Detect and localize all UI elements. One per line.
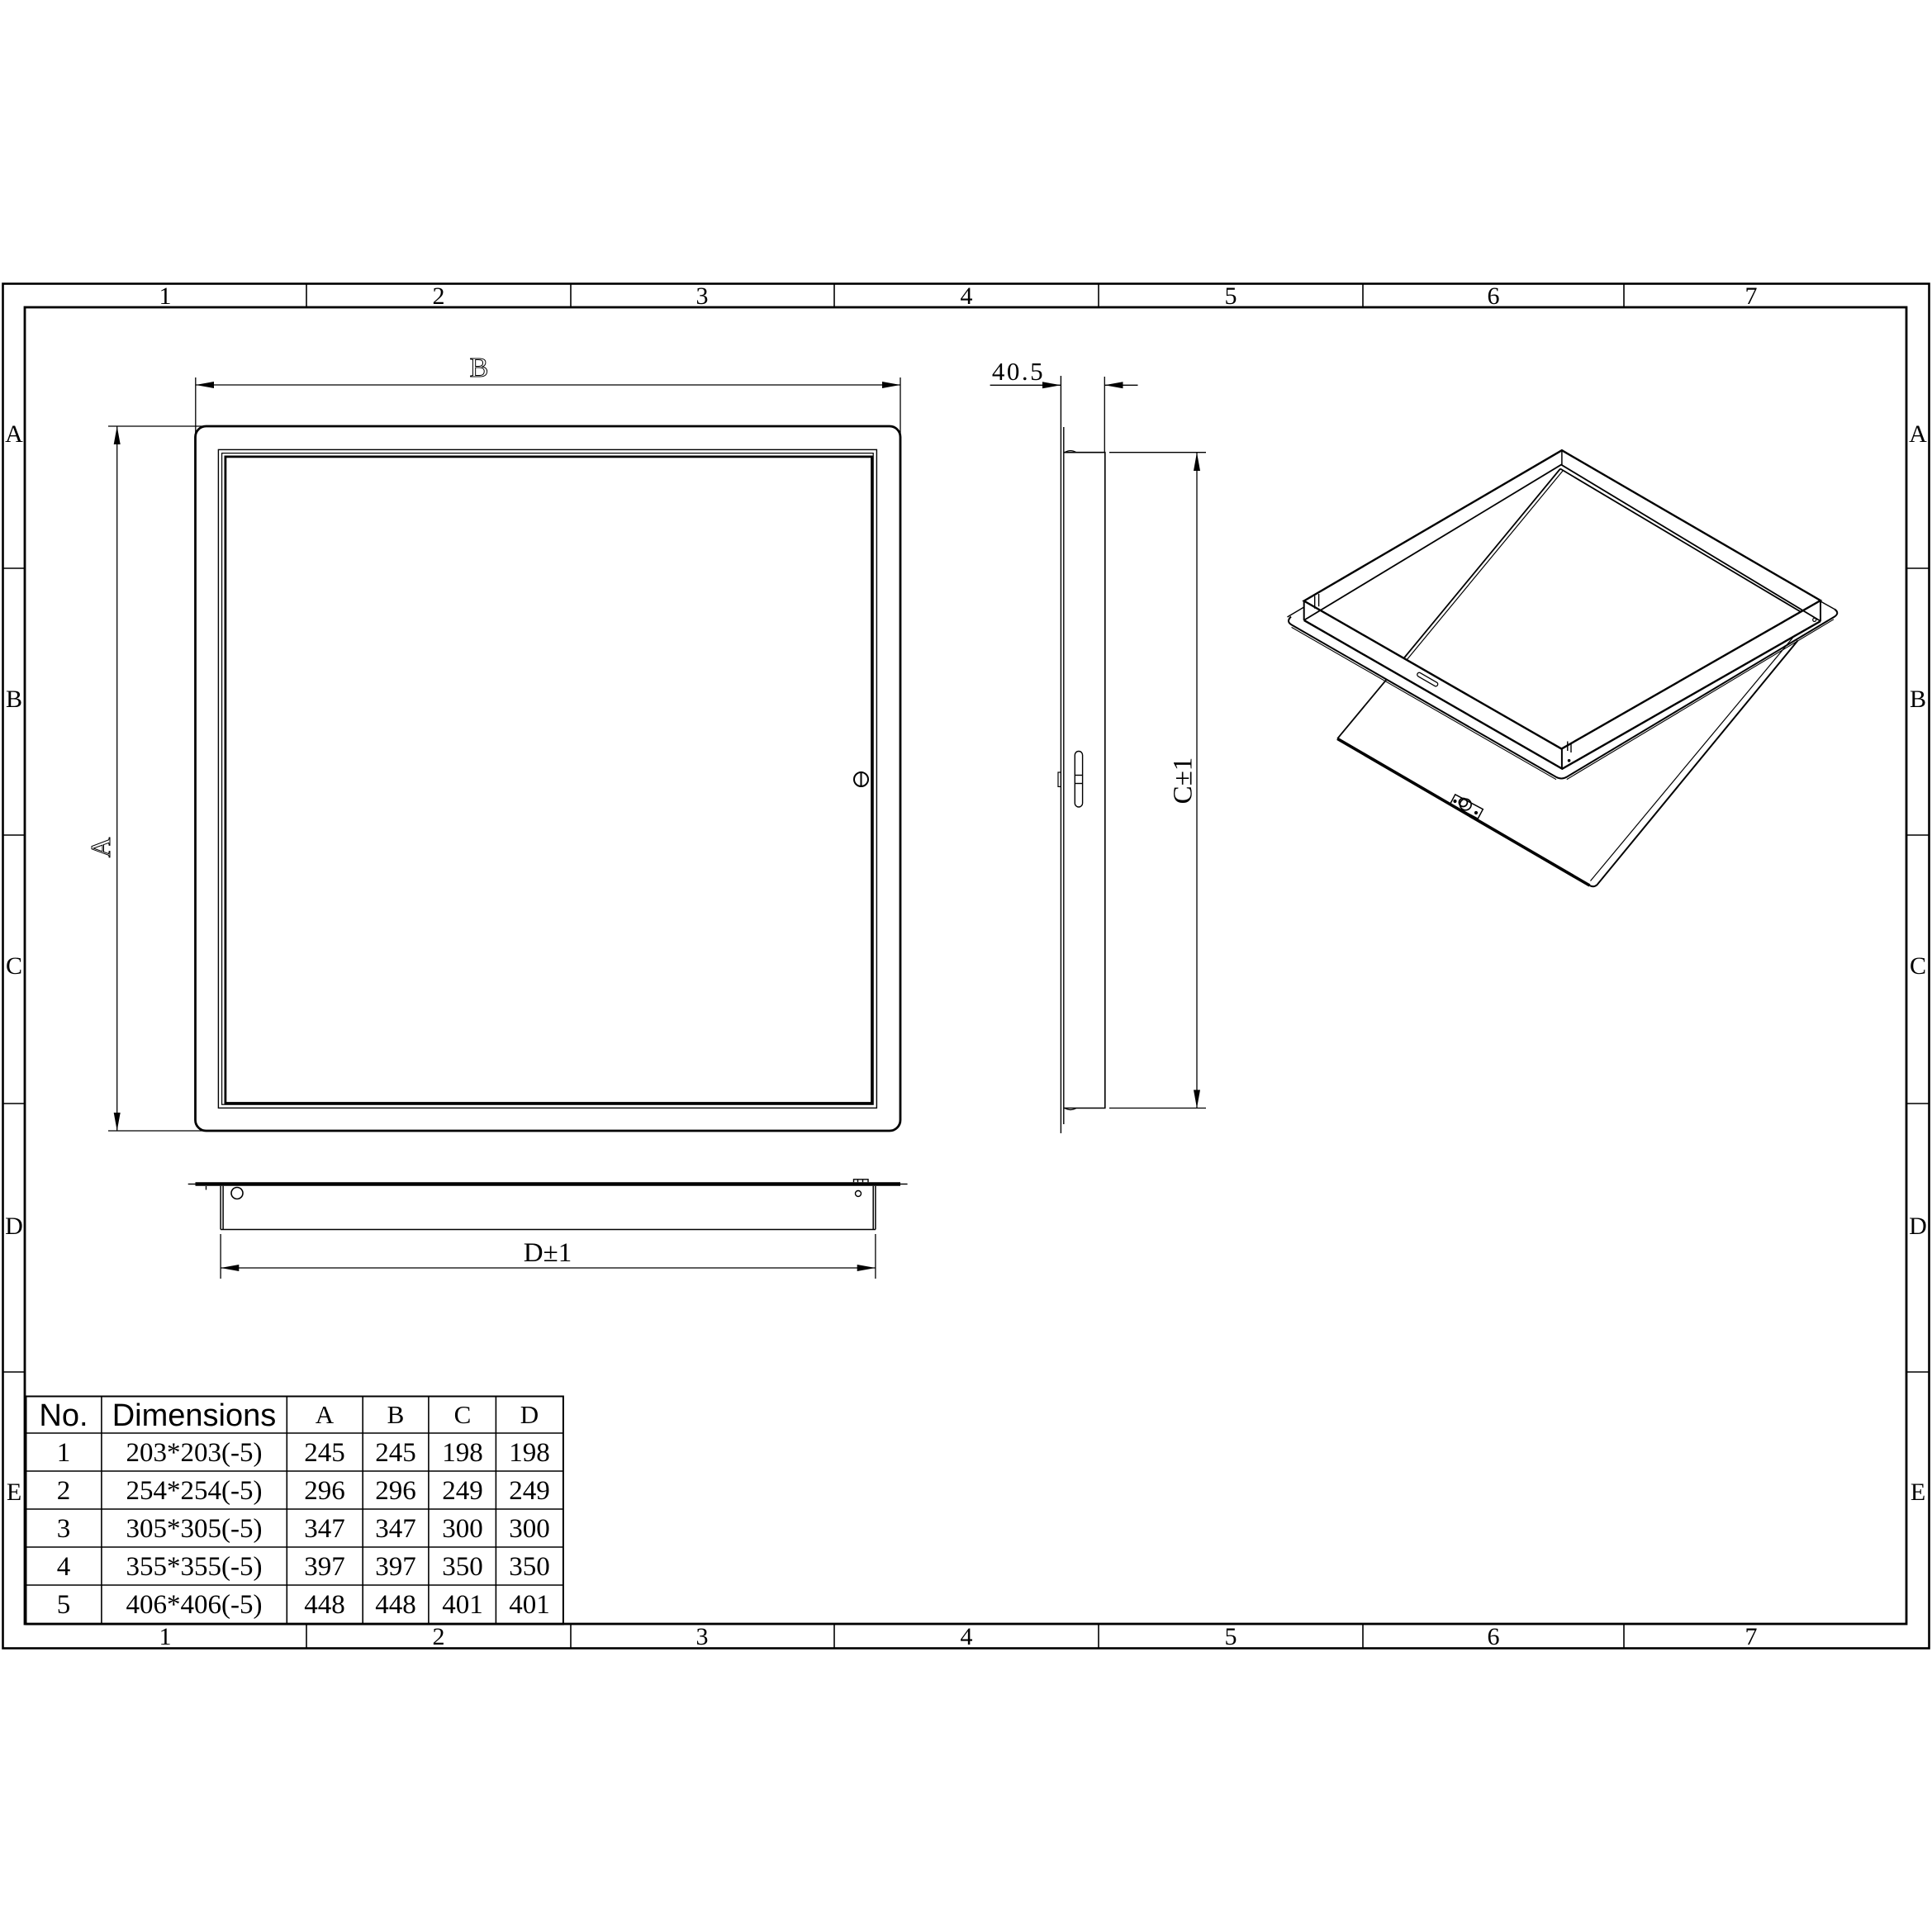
svg-text:249: 249 (509, 1476, 550, 1506)
svg-text:E: E (1911, 1479, 1925, 1506)
svg-text:40.5: 40.5 (992, 357, 1045, 386)
svg-text:C: C (1910, 952, 1926, 980)
svg-text:3: 3 (696, 282, 709, 310)
svg-text:245: 245 (375, 1438, 416, 1468)
svg-text:7: 7 (1745, 1623, 1758, 1650)
svg-text:249: 249 (442, 1476, 483, 1506)
svg-text:D: D (5, 1213, 23, 1240)
svg-text:5: 5 (1225, 282, 1237, 310)
svg-text:2: 2 (433, 282, 445, 310)
svg-text:203*203(-5): 203*203(-5) (126, 1438, 263, 1468)
svg-text:3: 3 (696, 1623, 709, 1650)
svg-text:A: A (1909, 420, 1927, 448)
svg-text:5: 5 (1225, 1623, 1237, 1650)
svg-text:401: 401 (509, 1590, 550, 1620)
svg-text:C: C (6, 952, 22, 980)
svg-text:A: A (5, 420, 23, 448)
svg-text:No.: No. (39, 1398, 88, 1433)
svg-text:C: C (454, 1400, 472, 1429)
svg-text:1: 1 (159, 282, 172, 310)
svg-text:406*406(-5): 406*406(-5) (126, 1590, 263, 1620)
svg-text:350: 350 (509, 1552, 550, 1582)
svg-text:254*254(-5): 254*254(-5) (126, 1476, 263, 1506)
svg-text:245: 245 (304, 1438, 345, 1468)
svg-text:1: 1 (159, 1623, 172, 1650)
svg-text:448: 448 (304, 1590, 345, 1620)
svg-text:448: 448 (375, 1590, 416, 1620)
svg-text:296: 296 (304, 1476, 345, 1506)
svg-text:D: D (520, 1400, 539, 1429)
svg-text:397: 397 (304, 1552, 345, 1582)
svg-text:198: 198 (509, 1438, 550, 1468)
svg-text:A: A (316, 1400, 335, 1429)
svg-text:C±1: C±1 (1169, 757, 1199, 805)
svg-text:4: 4 (961, 1623, 973, 1650)
svg-text:D: D (1909, 1213, 1927, 1240)
svg-text:347: 347 (375, 1514, 416, 1544)
svg-text:300: 300 (442, 1514, 483, 1544)
svg-text:2: 2 (433, 1623, 445, 1650)
svg-text:397: 397 (375, 1552, 416, 1582)
svg-text:4: 4 (57, 1552, 71, 1582)
svg-text:198: 198 (442, 1438, 483, 1468)
svg-text:4: 4 (961, 282, 973, 310)
svg-text:2: 2 (57, 1476, 71, 1506)
svg-text:300: 300 (509, 1514, 550, 1544)
svg-text:B: B (387, 1400, 405, 1429)
svg-text:B: B (1910, 686, 1926, 713)
svg-text:305*305(-5): 305*305(-5) (126, 1514, 263, 1544)
svg-text:350: 350 (442, 1552, 483, 1582)
svg-text:B: B (470, 353, 489, 383)
svg-text:6: 6 (1488, 282, 1500, 310)
svg-text:7: 7 (1745, 282, 1758, 310)
svg-text:Dimensions: Dimensions (112, 1398, 277, 1433)
svg-text:3: 3 (57, 1514, 71, 1544)
svg-text:E: E (7, 1479, 21, 1506)
svg-text:296: 296 (375, 1476, 416, 1506)
svg-text:401: 401 (442, 1590, 483, 1620)
svg-text:5: 5 (57, 1590, 71, 1620)
svg-text:6: 6 (1488, 1623, 1500, 1650)
svg-text:A: A (86, 837, 116, 857)
svg-text:355*355(-5): 355*355(-5) (126, 1552, 263, 1582)
svg-text:D±1: D±1 (524, 1238, 572, 1268)
svg-text:1: 1 (57, 1438, 71, 1468)
svg-text:347: 347 (304, 1514, 345, 1544)
svg-text:B: B (6, 686, 22, 713)
